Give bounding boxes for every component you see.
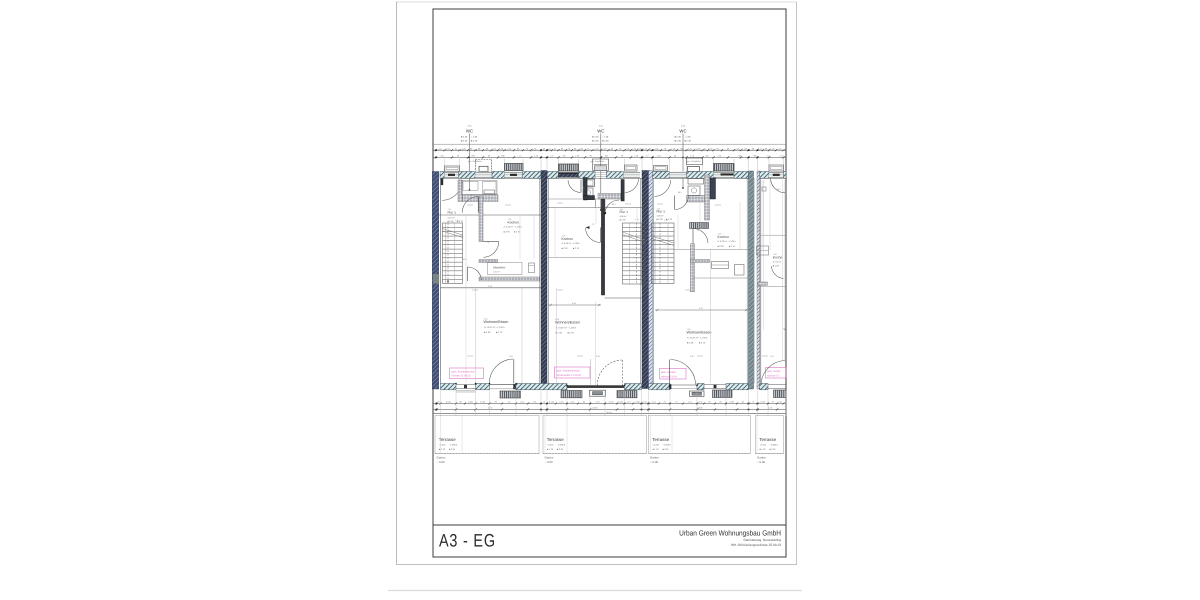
svg-text:■ 2.38: ■ 2.38 xyxy=(461,139,468,142)
svg-text:Garten: Garten xyxy=(437,455,446,459)
svg-text:4.05 m²: 4.05 m² xyxy=(657,214,664,217)
svg-text:W: W xyxy=(784,327,787,331)
svg-text:1.01: 1.01 xyxy=(455,219,459,222)
svg-text:4.21 m²: 4.21 m² xyxy=(448,216,455,219)
svg-text:~ 0.00: ~ 0.00 xyxy=(545,460,554,464)
svg-text:■ 3.35: ■ 3.35 xyxy=(770,448,777,451)
svg-text:76: 76 xyxy=(487,241,489,244)
svg-text:1.14: 1.14 xyxy=(664,219,668,222)
svg-text:gem. Kunden-: gem. Kunden- xyxy=(661,371,677,374)
svg-text:■ 2.70: ■ 2.70 xyxy=(496,331,503,334)
svg-text:Terrasse: Terrasse xyxy=(547,437,564,442)
svg-text:88.5: 88.5 xyxy=(777,188,781,191)
svg-text:■ 2.38: ■ 2.38 xyxy=(562,247,569,250)
svg-text:Fenster 21.09.23: Fenster 21.09.23 xyxy=(452,375,472,378)
svg-text:A: 9.2 m²: A: 9.2 m² xyxy=(773,260,782,263)
svg-text:Terrassentür 21.09.23: Terrassentür 21.09.23 xyxy=(557,374,582,377)
svg-text:1.135: 1.135 xyxy=(742,147,748,150)
svg-text:3.135: 3.135 xyxy=(618,401,624,404)
svg-text:■ 2.38: ■ 2.38 xyxy=(484,331,491,334)
svg-text:A: 23.87 m² ~1.135 h: A: 23.87 m² ~1.135 h xyxy=(687,336,708,339)
svg-text:76: 76 xyxy=(592,223,594,226)
svg-text:■ 1.78: ■ 1.78 xyxy=(547,448,554,451)
svg-text:WC: WC xyxy=(466,128,473,133)
svg-text:■ 2.38: ■ 2.38 xyxy=(592,135,599,138)
svg-text:2.26: 2.26 xyxy=(509,355,513,358)
svg-text:4.05 m²: 4.05 m² xyxy=(620,215,627,218)
svg-text:A3 - EG: A3 - EG xyxy=(439,531,496,551)
svg-text:■ 1.78: ■ 1.78 xyxy=(653,448,660,451)
svg-text:gem. Kunde: gem. Kunde xyxy=(767,370,781,373)
svg-text:~2.358.6: ~2.358.6 xyxy=(770,444,779,447)
svg-text:4.635: 4.635 xyxy=(592,407,598,410)
svg-text:Wohnen/Essen: Wohnen/Essen xyxy=(555,321,580,325)
svg-text:2.01: 2.01 xyxy=(770,355,774,358)
svg-text:~ 0.00: ~ 0.00 xyxy=(437,460,446,464)
svg-text:Terrasse: Terrasse xyxy=(759,437,776,442)
svg-text:■ 2.70: ■ 2.70 xyxy=(729,245,736,248)
svg-text:ges. Wegfläche: ges. Wegfläche xyxy=(687,160,702,163)
svg-text:■ 2.70: ■ 2.70 xyxy=(514,230,521,233)
svg-text:Wohnen/Essen: Wohnen/Essen xyxy=(484,320,509,324)
svg-text:~2.358.6: ~2.358.6 xyxy=(449,444,458,447)
svg-text:↕ 2.38: ↕ 2.38 xyxy=(471,135,478,138)
svg-text:■ 1.78: ■ 1.78 xyxy=(439,448,446,451)
svg-text:■ 2.38: ■ 2.38 xyxy=(592,139,599,142)
svg-text:■ 3.35: ■ 3.35 xyxy=(663,448,670,451)
svg-text:■ 2.38: ■ 2.38 xyxy=(620,219,627,222)
svg-text:■ 1.78: ■ 1.78 xyxy=(760,448,767,451)
svg-text:3.135: 3.135 xyxy=(549,401,555,404)
svg-text:3.135: 3.135 xyxy=(446,401,452,404)
svg-text:A: 23.07 m² ~1.135 h: A: 23.07 m² ~1.135 h xyxy=(484,326,505,329)
svg-text:88.5: 88.5 xyxy=(678,191,682,194)
svg-text:gem. Kundenwunsch: gem. Kundenwunsch xyxy=(557,370,581,373)
svg-text:■ 2.38: ■ 2.38 xyxy=(675,139,682,142)
svg-text:■ 2.38: ■ 2.38 xyxy=(461,135,468,138)
svg-text:■ 2.38: ■ 2.38 xyxy=(471,139,478,142)
svg-text:WC: WC xyxy=(679,128,686,133)
svg-text:Garten: Garten xyxy=(757,455,766,459)
svg-text:■ 2.70: ■ 2.70 xyxy=(568,332,575,335)
svg-text:Garten: Garten xyxy=(545,455,554,459)
svg-text:Wohnen/Essen: Wohnen/Essen xyxy=(687,331,712,335)
svg-text:↕ 2.38: ↕ 2.38 xyxy=(602,135,609,138)
svg-text:■ 3.35: ■ 3.35 xyxy=(449,448,456,451)
svg-text:~ 0.00: ~ 0.00 xyxy=(650,460,659,464)
svg-text:Urban Green Wohnungsbau GmbH: Urban Green Wohnungsbau GmbH xyxy=(679,529,781,538)
svg-text:wunsch 21.: wunsch 21. xyxy=(767,374,780,377)
svg-text:Garten: Garten xyxy=(650,455,659,459)
svg-text:35.74: 35.74 xyxy=(606,411,612,414)
svg-text:76: 76 xyxy=(697,229,699,232)
svg-text:+2.315: +2.315 xyxy=(760,444,767,447)
svg-text:3.135: 3.135 xyxy=(608,401,614,404)
svg-text:A: 9.26 m² ~1.135 h: A: 9.26 m² ~1.135 h xyxy=(718,240,737,243)
svg-text:1.385: 1.385 xyxy=(729,401,735,404)
svg-text:~2.358.6: ~2.358.6 xyxy=(557,444,566,447)
svg-text:Terrasse: Terrasse xyxy=(652,437,669,442)
svg-text:■ 2.38: ■ 2.38 xyxy=(602,139,609,142)
svg-text:3.135: 3.135 xyxy=(760,401,766,404)
svg-text:+2.315: +2.315 xyxy=(653,444,660,447)
svg-text:Abstellen: Abstellen xyxy=(493,265,506,269)
svg-text:88.5: 88.5 xyxy=(612,203,616,206)
svg-text:■ 2.38: ■ 2.38 xyxy=(504,230,511,233)
svg-text:~ 0.00: ~ 0.00 xyxy=(757,460,766,464)
svg-text:■ 2.70: ■ 2.70 xyxy=(573,247,580,250)
svg-text:4.635: 4.635 xyxy=(697,407,703,410)
svg-text:A: 23.87 m² ~1.135 h: A: 23.87 m² ~1.135 h xyxy=(556,326,577,329)
svg-text:A: 5.26 m² ~1.135 h: A: 5.26 m² ~1.135 h xyxy=(504,226,523,229)
svg-text:~2.358.6: ~2.358.6 xyxy=(663,444,672,447)
svg-text:■ 2.70: ■ 2.70 xyxy=(699,342,706,345)
svg-text:■ 2.38: ■ 2.38 xyxy=(675,135,682,138)
svg-text:■ 2.38: ■ 2.38 xyxy=(687,342,694,345)
svg-text:■ 2.38: ■ 2.38 xyxy=(718,245,725,248)
svg-text:A: 9.26 m² ~1.135 h: A: 9.26 m² ~1.135 h xyxy=(562,242,581,245)
svg-text:■ 2.38: ■ 2.38 xyxy=(685,139,692,142)
svg-text:1.385: 1.385 xyxy=(468,401,474,404)
svg-text:+2.315: +2.315 xyxy=(547,444,554,447)
svg-text:Terrasse: Terrasse xyxy=(439,437,456,442)
svg-text:■ 3.35: ■ 3.35 xyxy=(557,448,564,451)
svg-text:Ramstetweg, Neutraubling: Ramstetweg, Neutraubling xyxy=(743,538,781,542)
svg-text:+2.315: +2.315 xyxy=(439,444,446,447)
svg-text:1.385: 1.385 xyxy=(635,401,641,404)
svg-text:wunsch 21.09.: wunsch 21.09. xyxy=(661,375,677,378)
svg-text:↕ 2.38: ↕ 2.38 xyxy=(685,135,692,138)
svg-text:WH 100 Käufergrundrisse 25.09.: WH 100 Käufergrundrisse 25.09.23 xyxy=(731,543,781,547)
svg-text:WC: WC xyxy=(597,128,604,133)
svg-text:88.5: 88.5 xyxy=(470,194,474,197)
svg-text:■ 2.38: ■ 2.38 xyxy=(657,218,664,221)
svg-text:3.135: 3.135 xyxy=(480,401,486,404)
svg-text:gem. Kundenwunsch: gem. Kundenwunsch xyxy=(452,370,476,373)
svg-text:2.26: 2.26 xyxy=(596,355,600,358)
svg-text:2.35 m²: 2.35 m² xyxy=(493,271,500,274)
svg-text:2.26: 2.26 xyxy=(690,355,694,358)
svg-text:■ 2.38: ■ 2.38 xyxy=(773,264,780,267)
svg-text:1.135: 1.135 xyxy=(695,147,701,150)
